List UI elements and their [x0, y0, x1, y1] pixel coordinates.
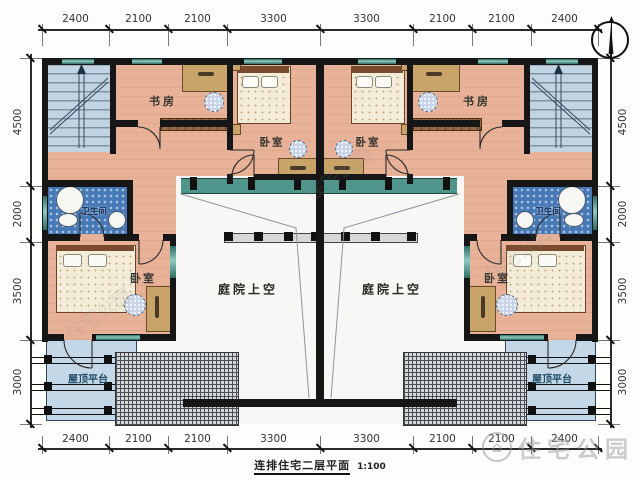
room-label-bedroom-low-right: 卧室 [484, 270, 510, 286]
dim-top-6: 2100 [413, 13, 472, 25]
dim-right-4: 3000 [617, 369, 629, 396]
drawing-title-text: 连排住宅二层平面 [254, 459, 350, 475]
dim-bottom-5: 3300 [320, 433, 413, 445]
toilet-icon [564, 213, 584, 227]
dim-top-4: 3300 [227, 13, 320, 25]
dim-top-2: 2100 [109, 13, 168, 25]
bed-icon [237, 66, 291, 124]
dim-top-3: 2100 [168, 13, 227, 25]
dim-bottom-6: 2100 [413, 433, 472, 445]
party-wall [316, 58, 324, 407]
dim-right-1: 4500 [617, 109, 629, 136]
dim-right-3: 3500 [617, 278, 629, 305]
staircase-left [48, 64, 110, 152]
room-label-bedroom-top-left: 卧室 [260, 135, 285, 150]
brand-text: 住宅公园 [518, 430, 634, 464]
dim-top-7: 2100 [472, 13, 531, 25]
drawing-scale: 1:100 [357, 462, 386, 472]
dim-right-2: 2000 [617, 201, 629, 228]
room-label-bathroom-left: 卫生间 [81, 205, 107, 217]
desk-icon [410, 64, 460, 92]
dim-left-1: 4500 [12, 109, 24, 136]
room-label-study-left: 书房 [149, 93, 177, 109]
desk-icon [182, 64, 232, 92]
watermark-brand: ⌂ 住宅公园 [482, 430, 634, 464]
room-label-bedroom-top-right: 卧室 [356, 135, 381, 150]
sink-icon [108, 211, 126, 229]
sink-icon [516, 211, 534, 229]
chair-icon [204, 92, 224, 112]
room-label-courtyard-left: 庭院上空 [218, 281, 278, 298]
dim-top-5: 3300 [320, 13, 413, 25]
room-label-terrace-left: 屋顶平台 [68, 371, 108, 386]
dim-top-1: 2400 [42, 13, 109, 25]
dim-top-8: 2400 [531, 13, 598, 25]
chair-icon [418, 92, 438, 112]
pergola-grid-right [403, 352, 527, 426]
courtyard-rear-wall [183, 399, 457, 407]
toilet-icon [58, 213, 78, 227]
room-label-terrace-right: 屋顶平台 [532, 371, 572, 386]
dim-left-2: 2000 [12, 201, 24, 228]
room-label-bedroom-low-left: 卧室 [130, 270, 156, 286]
bed-icon [351, 66, 405, 124]
floor-plan-canvas: 书房 书房 卧室 卧室 卧室 卧室 卫生间 卫生间 庭院上空 庭院上空 屋顶平台… [0, 0, 640, 480]
staircase-right [530, 64, 592, 152]
room-label-courtyard-right: 庭院上空 [362, 281, 422, 298]
pergola-grid-left [115, 352, 239, 426]
dim-bottom-3: 2100 [168, 433, 227, 445]
window [62, 59, 94, 64]
room-label-bathroom-right: 卫生间 [535, 205, 561, 217]
north-arrow-icon [591, 21, 629, 59]
dim-bottom-1: 2400 [42, 433, 109, 445]
shower-icon [56, 186, 84, 214]
dim-bottom-4: 3300 [227, 433, 320, 445]
brand-logo-icon: ⌂ [482, 432, 512, 462]
dim-left-3: 3500 [12, 278, 24, 305]
dim-left-4: 3000 [12, 369, 24, 396]
shower-icon [558, 186, 586, 214]
dim-bottom-2: 2100 [109, 433, 168, 445]
room-label-study-right: 书房 [463, 93, 491, 109]
